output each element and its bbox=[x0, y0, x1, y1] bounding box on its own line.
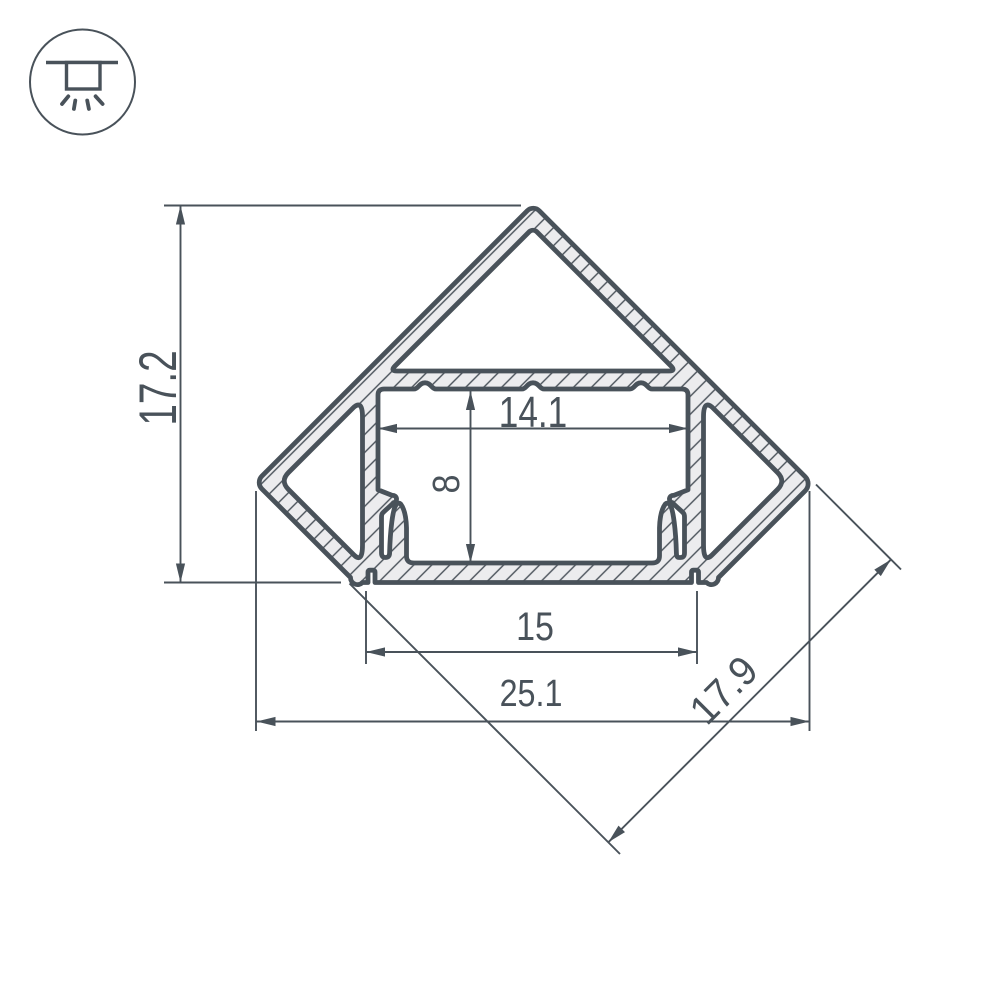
svg-text:25.1: 25.1 bbox=[500, 673, 563, 715]
svg-text:15: 15 bbox=[516, 603, 554, 648]
svg-text:17.9: 17.9 bbox=[681, 648, 766, 733]
svg-text:14.1: 14.1 bbox=[499, 388, 567, 437]
svg-text:17.2: 17.2 bbox=[128, 350, 187, 425]
svg-text:8: 8 bbox=[424, 474, 467, 493]
